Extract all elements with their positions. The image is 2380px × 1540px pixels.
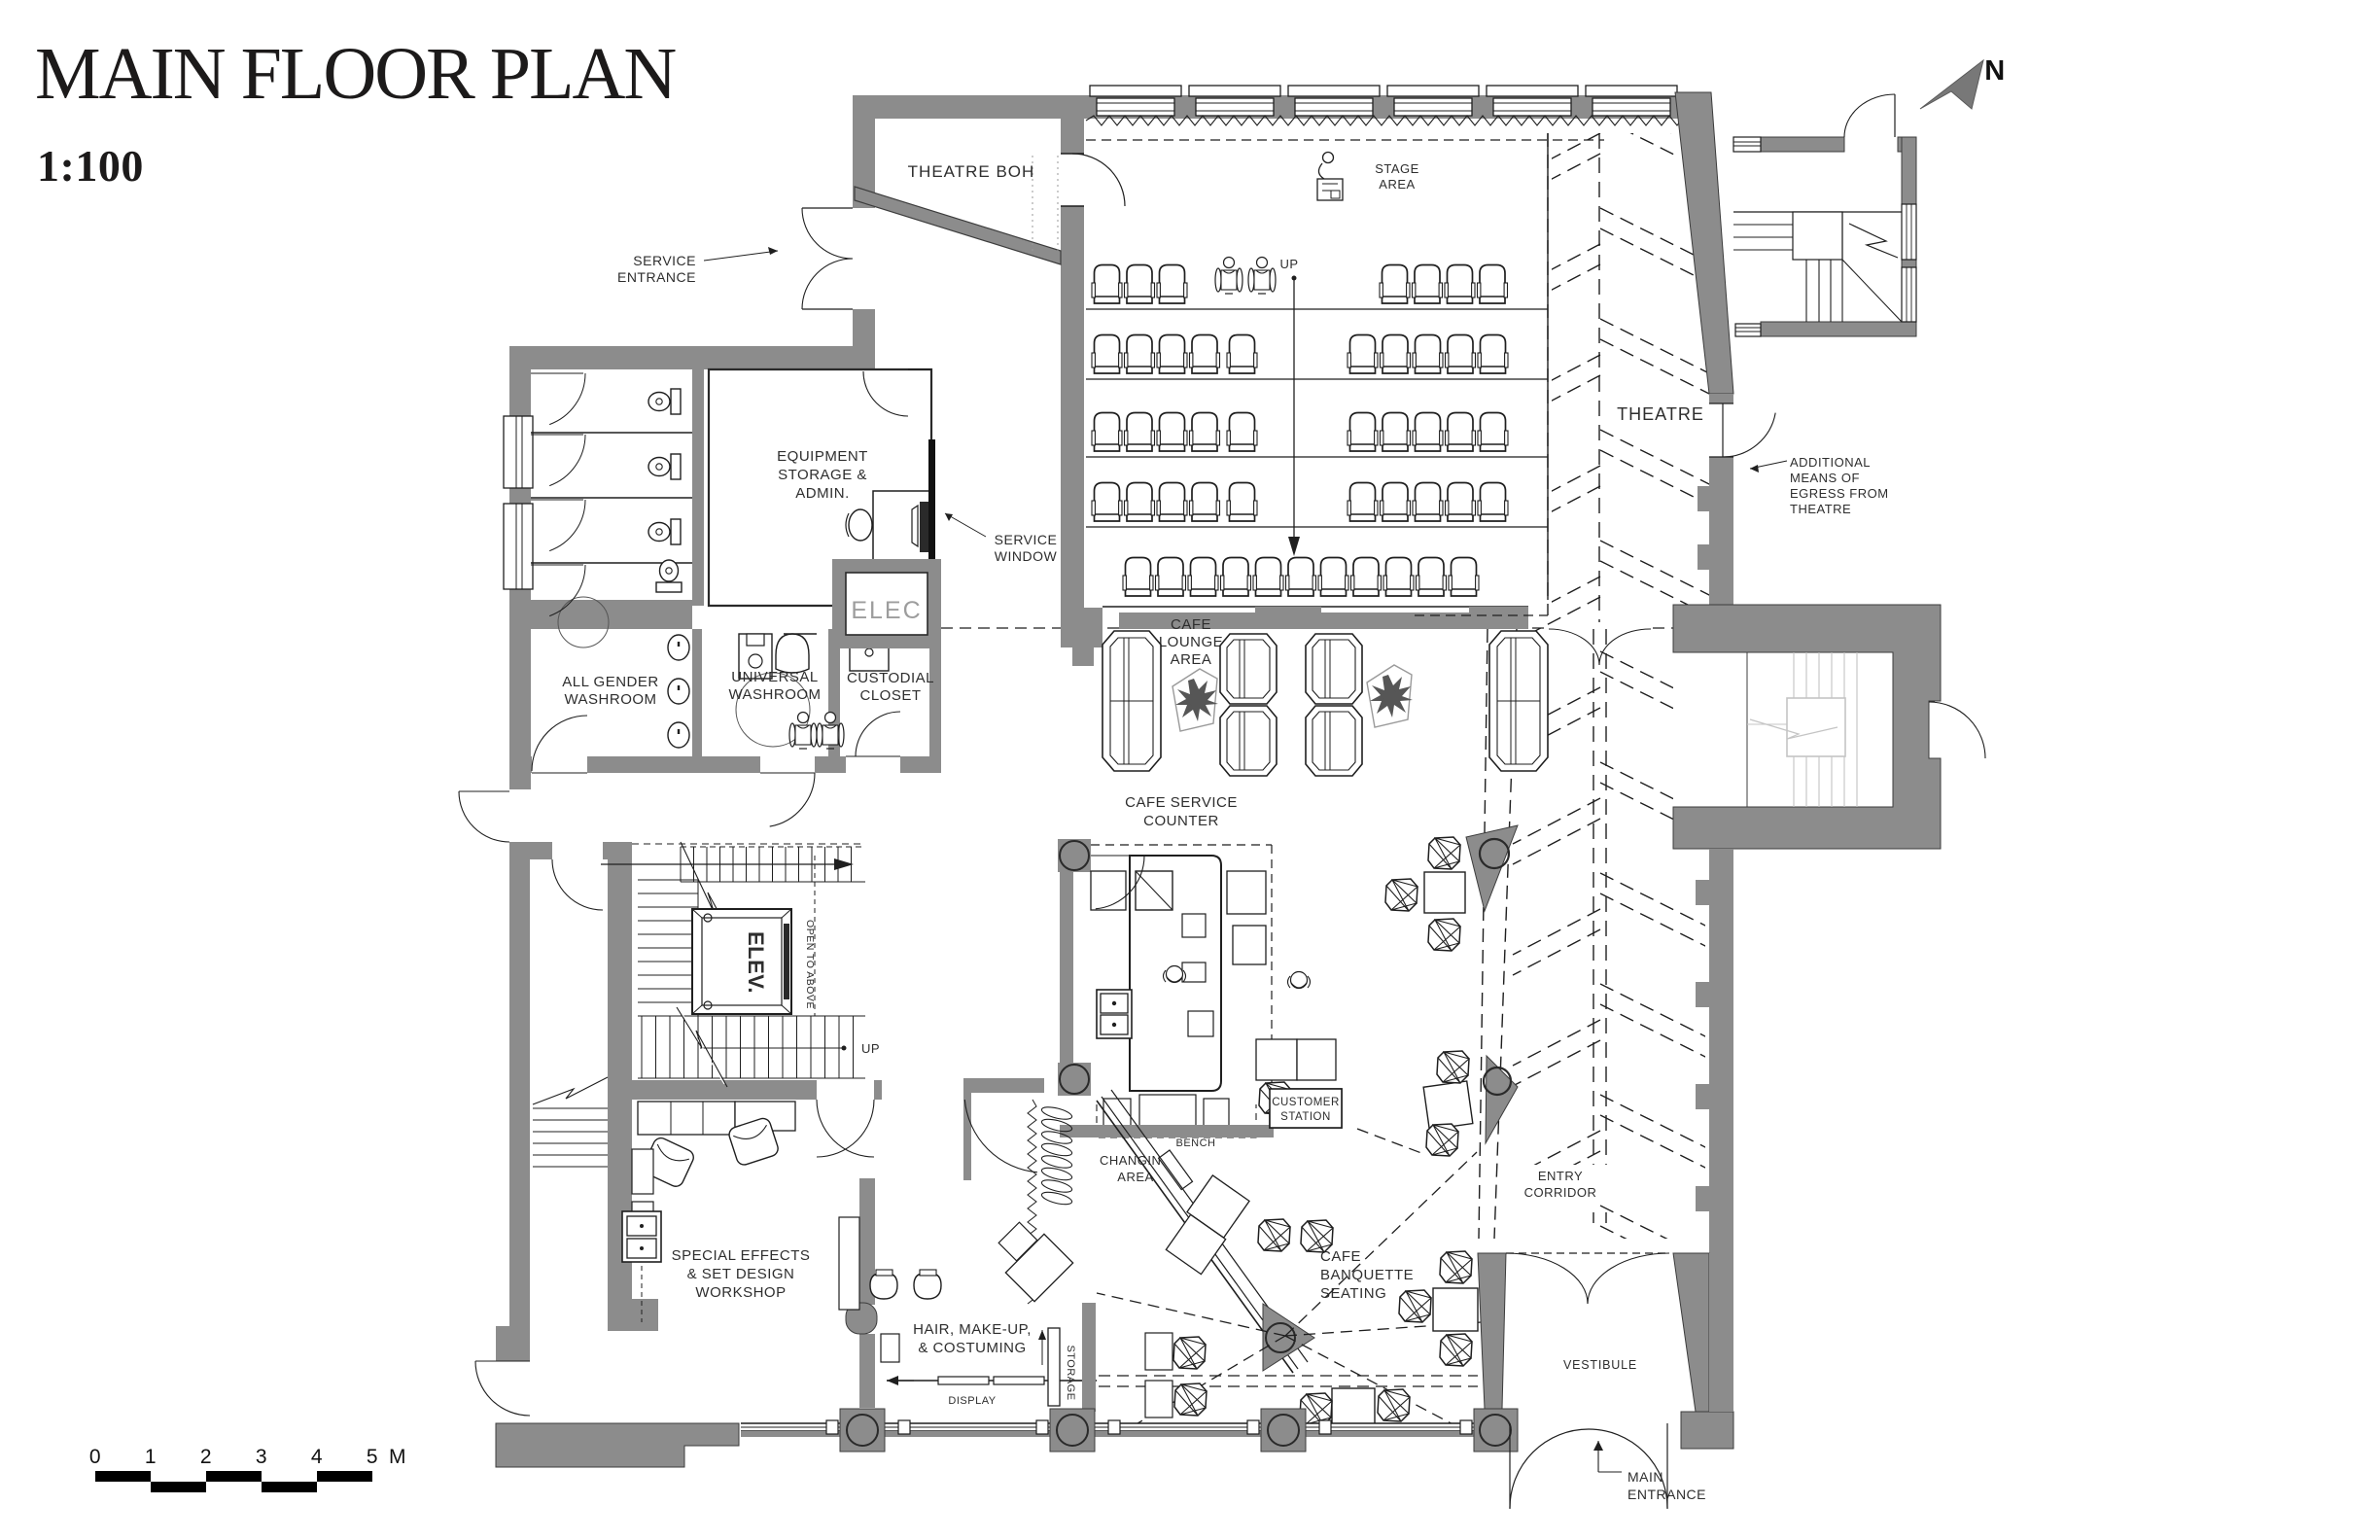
svg-text:WINDOW: WINDOW bbox=[995, 548, 1058, 564]
svg-text:SPECIAL EFFECTS: SPECIAL EFFECTS bbox=[672, 1247, 811, 1264]
svg-text:0: 0 bbox=[89, 1446, 101, 1468]
svg-text:5: 5 bbox=[367, 1446, 378, 1468]
svg-text:ENTRANCE: ENTRANCE bbox=[617, 269, 696, 285]
svg-text:AREA: AREA bbox=[1379, 177, 1415, 192]
svg-text:CAFE SERVICE: CAFE SERVICE bbox=[1125, 794, 1238, 811]
svg-text:ENTRANCE: ENTRANCE bbox=[1627, 1487, 1706, 1502]
svg-text:4: 4 bbox=[311, 1446, 323, 1468]
svg-text:STORAGE: STORAGE bbox=[1065, 1345, 1076, 1400]
svg-text:1: 1 bbox=[145, 1446, 157, 1468]
svg-text:WORKSHOP: WORKSHOP bbox=[695, 1284, 786, 1301]
svg-text:BANQUETTE: BANQUETTE bbox=[1320, 1267, 1414, 1283]
svg-text:ALL GENDER: ALL GENDER bbox=[562, 674, 658, 690]
svg-text:ADMIN.: ADMIN. bbox=[795, 485, 850, 502]
svg-text:ELEV.: ELEV. bbox=[744, 931, 768, 994]
svg-text:LOUNGE: LOUNGE bbox=[1159, 634, 1223, 650]
svg-text:EGRESS FROM: EGRESS FROM bbox=[1790, 486, 1889, 501]
svg-text:MAIN: MAIN bbox=[1627, 1469, 1663, 1485]
svg-text:STATION: STATION bbox=[1280, 1111, 1331, 1123]
svg-text:2: 2 bbox=[200, 1446, 212, 1468]
svg-text:& SET DESIGN: & SET DESIGN bbox=[687, 1266, 795, 1282]
svg-text:MAIN FLOOR PLAN: MAIN FLOOR PLAN bbox=[35, 33, 676, 115]
svg-text:WASHROOM: WASHROOM bbox=[728, 686, 821, 703]
svg-text:UP: UP bbox=[1279, 257, 1298, 271]
svg-text:CORRIDOR: CORRIDOR bbox=[1524, 1185, 1597, 1200]
svg-text:1:100: 1:100 bbox=[37, 141, 144, 191]
svg-text:ENTRY: ENTRY bbox=[1538, 1169, 1583, 1183]
svg-text:OPEN TO ABOVE: OPEN TO ABOVE bbox=[804, 920, 816, 1009]
svg-text:THEATRE: THEATRE bbox=[1617, 404, 1704, 424]
svg-text:ELEC: ELEC bbox=[851, 597, 922, 624]
svg-text:AREA: AREA bbox=[1171, 651, 1212, 668]
svg-text:CUSTOMER: CUSTOMER bbox=[1272, 1097, 1340, 1108]
svg-text:& COSTUMING: & COSTUMING bbox=[918, 1340, 1026, 1356]
svg-text:STAGE: STAGE bbox=[1375, 161, 1419, 176]
svg-text:SERVICE: SERVICE bbox=[995, 532, 1058, 547]
svg-text:EQUIPMENT: EQUIPMENT bbox=[777, 448, 868, 465]
svg-text:SERVICE: SERVICE bbox=[633, 253, 696, 268]
svg-text:DISPLAY: DISPLAY bbox=[948, 1395, 996, 1407]
svg-text:THEATRE: THEATRE bbox=[1790, 502, 1851, 516]
svg-text:COUNTER: COUNTER bbox=[1143, 813, 1219, 829]
svg-text:ADDITIONAL: ADDITIONAL bbox=[1790, 455, 1871, 470]
svg-text:CUSTODIAL: CUSTODIAL bbox=[847, 670, 934, 686]
svg-text:CLOSET: CLOSET bbox=[859, 687, 921, 704]
svg-text:UP: UP bbox=[861, 1041, 880, 1056]
svg-text:HAIR, MAKE-UP,: HAIR, MAKE-UP, bbox=[913, 1321, 1032, 1338]
svg-text:BENCH: BENCH bbox=[1175, 1137, 1215, 1149]
svg-text:VESTIBULE: VESTIBULE bbox=[1563, 1358, 1637, 1372]
svg-text:MEANS OF: MEANS OF bbox=[1790, 471, 1860, 485]
svg-text:THEATRE BOH: THEATRE BOH bbox=[908, 162, 1035, 181]
svg-text:UNIVERSAL: UNIVERSAL bbox=[731, 669, 819, 685]
svg-text:STORAGE &: STORAGE & bbox=[778, 467, 867, 483]
svg-text:WASHROOM: WASHROOM bbox=[564, 691, 656, 708]
svg-text:3: 3 bbox=[256, 1446, 267, 1468]
svg-text:N: N bbox=[1984, 55, 2005, 87]
svg-text:CAFE: CAFE bbox=[1171, 616, 1211, 633]
svg-text:M: M bbox=[389, 1446, 406, 1468]
